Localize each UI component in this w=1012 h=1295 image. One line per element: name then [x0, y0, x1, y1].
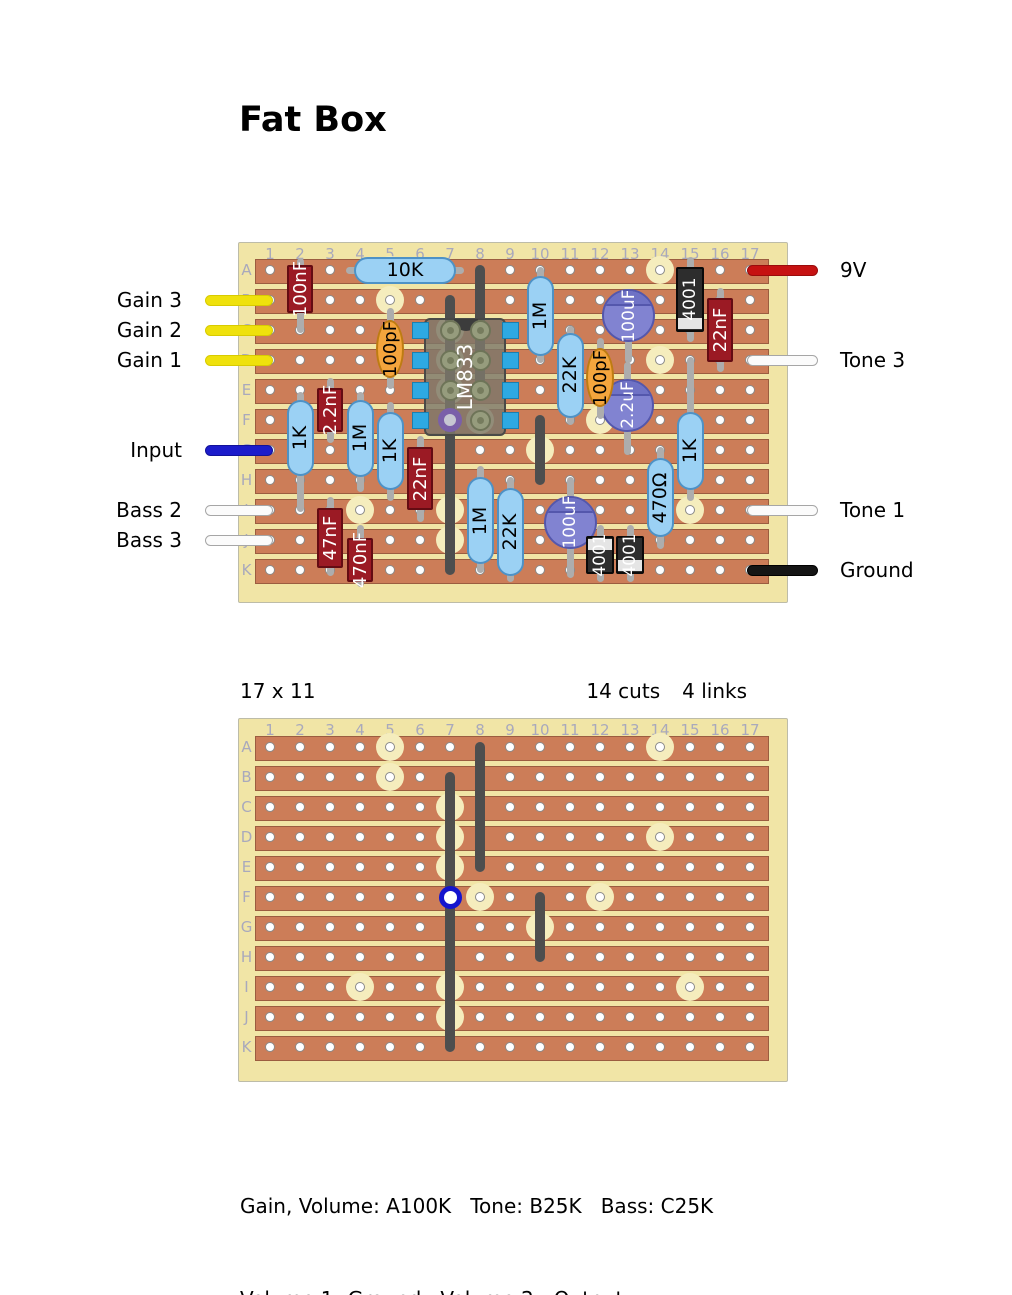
diode-cathode-band — [678, 318, 702, 329]
hole — [475, 952, 485, 962]
hole — [745, 295, 755, 305]
hole — [715, 922, 725, 932]
hole — [505, 1042, 515, 1052]
row-letter: K — [239, 1038, 254, 1056]
hole — [385, 892, 395, 902]
io-label-input: Input — [57, 437, 182, 463]
hole — [565, 1042, 575, 1052]
hole — [595, 445, 605, 455]
hole — [655, 892, 665, 902]
board-summary-row: 17 x 11 14 cuts 4 links — [240, 679, 747, 703]
hole — [655, 862, 665, 872]
hole — [535, 1042, 545, 1052]
hole — [295, 1012, 305, 1022]
row-letter: A — [239, 261, 254, 279]
hole — [595, 1042, 605, 1052]
hole — [595, 862, 605, 872]
hole — [355, 922, 365, 932]
hole — [325, 295, 335, 305]
row-letter: B — [239, 768, 254, 786]
film-capacitor-2.2nF — [317, 388, 343, 432]
hole — [505, 982, 515, 992]
ic-solder-pad — [502, 322, 519, 339]
hole — [565, 445, 575, 455]
hole — [415, 772, 425, 782]
hole — [655, 952, 665, 962]
ic-pin-dot — [477, 417, 484, 424]
hole — [505, 952, 515, 962]
hole — [475, 892, 485, 902]
hole — [595, 922, 605, 932]
hole — [715, 892, 725, 902]
hole — [745, 1042, 755, 1052]
diode-4001 — [616, 536, 644, 574]
hole — [595, 952, 605, 962]
hole — [355, 802, 365, 812]
hole — [535, 832, 545, 842]
row-letter: F — [239, 888, 254, 906]
hole — [685, 862, 695, 872]
hole — [655, 415, 665, 425]
film-capacitor-470nF — [347, 538, 373, 582]
row-letter: E — [239, 858, 254, 876]
hole — [565, 922, 575, 932]
capacitor-polarity-band — [546, 498, 595, 513]
hole — [355, 892, 365, 902]
hole — [415, 742, 425, 752]
hole — [655, 772, 665, 782]
hole — [385, 505, 395, 515]
hole — [505, 295, 515, 305]
row-letter: D — [239, 828, 254, 846]
hole — [715, 475, 725, 485]
hole — [655, 742, 665, 752]
hole — [535, 742, 545, 752]
ceramic-capacitor-100pF — [586, 348, 614, 407]
hole — [265, 385, 275, 395]
hole — [595, 832, 605, 842]
hole — [385, 802, 395, 812]
hole — [595, 802, 605, 812]
hole — [685, 952, 695, 962]
hole — [475, 922, 485, 932]
hole — [505, 265, 515, 275]
hole — [325, 325, 335, 335]
wire-gain-2 — [205, 325, 273, 336]
hole — [265, 922, 275, 932]
hole — [715, 505, 725, 515]
hole — [415, 982, 425, 992]
hole — [625, 505, 635, 515]
ic-pin-dot — [477, 387, 484, 394]
hole — [685, 832, 695, 842]
hole — [655, 832, 665, 842]
resistor-22K — [557, 333, 584, 418]
hole — [355, 355, 365, 365]
hole — [325, 802, 335, 812]
row-letter: G — [239, 918, 254, 936]
hole — [265, 982, 275, 992]
hole — [505, 772, 515, 782]
hole — [745, 385, 755, 395]
resistor-10K — [354, 257, 456, 284]
row-letter: H — [239, 471, 254, 489]
ic-pin-dot — [447, 357, 454, 364]
hole — [595, 475, 605, 485]
hole — [625, 922, 635, 932]
hole — [625, 772, 635, 782]
hole — [505, 1012, 515, 1022]
hole — [685, 982, 695, 992]
film-capacitor-100nF — [287, 265, 313, 313]
hole — [505, 742, 515, 752]
hole — [715, 445, 725, 455]
hole — [565, 862, 575, 872]
hole — [625, 862, 635, 872]
ic-solder-pad — [412, 382, 429, 399]
hole — [535, 1012, 545, 1022]
hole — [715, 1012, 725, 1022]
hole — [745, 445, 755, 455]
resistor-22K — [497, 488, 524, 577]
note-line-2: Volume 1 -Ground Volume 2 - Output — [240, 1284, 713, 1295]
hole — [385, 862, 395, 872]
hole — [295, 802, 305, 812]
wire-ground — [747, 565, 818, 576]
hole — [655, 355, 665, 365]
ic-pin-dot — [477, 327, 484, 334]
hole — [685, 922, 695, 932]
capacitor-polarity-band — [604, 291, 653, 306]
hole — [295, 565, 305, 575]
hole — [325, 922, 335, 932]
ic-pin-dot — [447, 327, 454, 334]
hole — [325, 475, 335, 485]
hole — [685, 892, 695, 902]
hole — [295, 862, 305, 872]
hole — [565, 892, 575, 902]
hole — [565, 982, 575, 992]
ic-solder-pad — [502, 412, 519, 429]
ic-solder-pad — [412, 352, 429, 369]
hole — [715, 952, 725, 962]
hole — [355, 325, 365, 335]
hole — [745, 982, 755, 992]
hole — [325, 445, 335, 455]
hole — [265, 1012, 275, 1022]
hole — [535, 565, 545, 575]
hole — [565, 295, 575, 305]
row-letter: F — [239, 411, 254, 429]
hole — [385, 982, 395, 992]
hole — [415, 1042, 425, 1052]
wire-gain-3 — [205, 295, 273, 306]
hole — [535, 505, 545, 515]
hole — [685, 742, 695, 752]
hole — [295, 952, 305, 962]
hole — [385, 1012, 395, 1022]
ic-pin-dot — [477, 357, 484, 364]
hole — [355, 1042, 365, 1052]
hole — [535, 535, 545, 545]
row-letter: J — [239, 1008, 254, 1026]
hole — [355, 742, 365, 752]
hole — [355, 772, 365, 782]
hole — [715, 862, 725, 872]
hole — [385, 565, 395, 575]
link-wire — [445, 415, 455, 575]
hole — [265, 802, 275, 812]
hole — [325, 952, 335, 962]
hole — [385, 832, 395, 842]
hole — [655, 922, 665, 932]
io-label-gain-2: Gain 2 — [57, 317, 182, 343]
hole — [685, 1042, 695, 1052]
hole — [565, 1012, 575, 1022]
hole — [715, 535, 725, 545]
hole — [505, 802, 515, 812]
hole — [655, 802, 665, 812]
hole — [625, 982, 635, 992]
hole — [655, 982, 665, 992]
hole — [355, 952, 365, 962]
hole — [265, 565, 275, 575]
hole — [625, 1042, 635, 1052]
hole — [355, 505, 365, 515]
hole — [385, 742, 395, 752]
hole — [565, 802, 575, 812]
hole — [295, 982, 305, 992]
row-letter: C — [239, 798, 254, 816]
hole — [715, 772, 725, 782]
hole — [715, 982, 725, 992]
hole — [655, 295, 665, 305]
hole — [535, 385, 545, 395]
hole — [415, 862, 425, 872]
hole — [655, 265, 665, 275]
hole — [685, 565, 695, 575]
links-count-label: 4 links — [682, 679, 747, 703]
link-wire — [445, 892, 455, 1052]
hole — [415, 802, 425, 812]
board-size-label: 17 x 11 — [240, 679, 315, 703]
hole — [265, 475, 275, 485]
hole — [415, 565, 425, 575]
diode-cathode-band — [618, 560, 642, 571]
row-letter: A — [239, 738, 254, 756]
hole — [745, 862, 755, 872]
resistor-1K — [287, 400, 314, 476]
hole — [325, 355, 335, 365]
hole — [355, 982, 365, 992]
hole — [355, 862, 365, 872]
film-capacitor-22nF — [707, 298, 733, 362]
ic-body-LM833 — [424, 318, 506, 436]
hole — [745, 892, 755, 902]
hole — [595, 265, 605, 275]
hole — [715, 565, 725, 575]
hole — [265, 415, 275, 425]
hole — [295, 535, 305, 545]
hole — [535, 802, 545, 812]
hole — [565, 832, 575, 842]
hole — [655, 385, 665, 395]
ic-pin-dot — [447, 387, 454, 394]
hole — [625, 892, 635, 902]
ic-solder-pad — [412, 322, 429, 339]
hole — [355, 832, 365, 842]
hole — [595, 772, 605, 782]
hole — [385, 535, 395, 545]
hole — [415, 922, 425, 932]
hole — [325, 1042, 335, 1052]
via-junction — [439, 886, 462, 909]
ic-solder-pad — [412, 412, 429, 429]
hole — [745, 952, 755, 962]
hole — [715, 415, 725, 425]
hole — [475, 1042, 485, 1052]
resistor-1M — [347, 400, 374, 477]
io-label-tone-1: Tone 1 — [840, 497, 1000, 523]
hole — [265, 862, 275, 872]
hole — [565, 742, 575, 752]
hole — [505, 892, 515, 902]
hole — [295, 922, 305, 932]
hole — [265, 1042, 275, 1052]
hole — [715, 1042, 725, 1052]
hole — [655, 1012, 665, 1022]
hole — [745, 535, 755, 545]
link-wire — [475, 742, 485, 872]
hole — [265, 265, 275, 275]
link-wire — [445, 772, 455, 902]
hole — [565, 265, 575, 275]
hole — [715, 802, 725, 812]
hole — [295, 832, 305, 842]
hole — [325, 982, 335, 992]
hole — [745, 742, 755, 752]
hole — [505, 922, 515, 932]
pot-wiring-notes: Gain, Volume: A100K Tone: B25K Bass: C25… — [240, 1129, 713, 1295]
resistor-1M — [527, 276, 554, 356]
io-label-bass-3: Bass 3 — [57, 527, 182, 553]
wire-9v — [747, 265, 818, 276]
diode-cathode-band — [588, 539, 612, 550]
hole — [295, 892, 305, 902]
resistor-1K — [677, 412, 704, 490]
hole — [475, 445, 485, 455]
hole — [625, 742, 635, 752]
hole — [625, 802, 635, 812]
wire-input — [205, 445, 273, 456]
film-capacitor-22nF — [407, 447, 433, 510]
wire-gain-1 — [205, 355, 273, 366]
hole — [415, 832, 425, 842]
ceramic-capacitor-100pF — [376, 320, 404, 379]
wire-bass-3 — [205, 535, 273, 546]
hole — [505, 832, 515, 842]
hole — [475, 1012, 485, 1022]
io-label-gain-3: Gain 3 — [57, 287, 182, 313]
hole — [565, 952, 575, 962]
hole — [655, 1042, 665, 1052]
hole — [415, 295, 425, 305]
hole — [685, 535, 695, 545]
hole — [745, 325, 755, 335]
resistor-1K — [377, 412, 404, 490]
resistor-470Ω — [647, 458, 674, 537]
hole — [625, 1012, 635, 1022]
hole — [625, 832, 635, 842]
hole — [265, 832, 275, 842]
hole — [295, 1042, 305, 1052]
wire-tone-3 — [747, 355, 818, 366]
hole — [385, 772, 395, 782]
hole — [595, 892, 605, 902]
link-wire — [535, 892, 545, 962]
hole — [385, 952, 395, 962]
cuts-count-label: 14 cuts — [586, 679, 660, 703]
hole — [595, 1012, 605, 1022]
hole — [595, 982, 605, 992]
hole — [745, 1012, 755, 1022]
hole — [385, 295, 395, 305]
hole — [715, 832, 725, 842]
ic-solder-pad — [502, 382, 519, 399]
diode-4001 — [586, 536, 614, 574]
io-label-bass-2: Bass 2 — [57, 497, 182, 523]
note-line-1: Gain, Volume: A100K Tone: B25K Bass: C25… — [240, 1191, 713, 1222]
hole — [385, 1042, 395, 1052]
layout-title: Fat Box — [239, 100, 387, 140]
hole — [325, 742, 335, 752]
hole — [715, 265, 725, 275]
hole — [535, 982, 545, 992]
page: Fat Box 1234567891011121314151617ABCDEFG… — [0, 0, 1012, 1295]
hole — [685, 505, 695, 515]
film-capacitor-47nF — [317, 508, 343, 568]
io-label-ground: Ground — [840, 557, 1000, 583]
hole — [325, 892, 335, 902]
io-label-9v: 9V — [840, 257, 1000, 283]
ic-solder-pad — [502, 352, 519, 369]
hole — [655, 325, 665, 335]
hole — [745, 922, 755, 932]
hole — [325, 1012, 335, 1022]
hole — [415, 892, 425, 902]
hole — [745, 802, 755, 812]
hole — [295, 772, 305, 782]
hole — [325, 832, 335, 842]
row-letter: H — [239, 948, 254, 966]
hole — [655, 565, 665, 575]
hole — [685, 772, 695, 782]
row-letter: K — [239, 561, 254, 579]
hole — [415, 1012, 425, 1022]
hole — [745, 475, 755, 485]
hole — [325, 862, 335, 872]
hole — [595, 505, 605, 515]
hole — [415, 535, 425, 545]
hole — [565, 772, 575, 782]
hole — [745, 415, 755, 425]
hole — [325, 772, 335, 782]
io-label-gain-1: Gain 1 — [57, 347, 182, 373]
io-label-tone-3: Tone 3 — [840, 347, 1000, 373]
hole — [265, 892, 275, 902]
hole — [325, 265, 335, 275]
hole — [505, 445, 515, 455]
